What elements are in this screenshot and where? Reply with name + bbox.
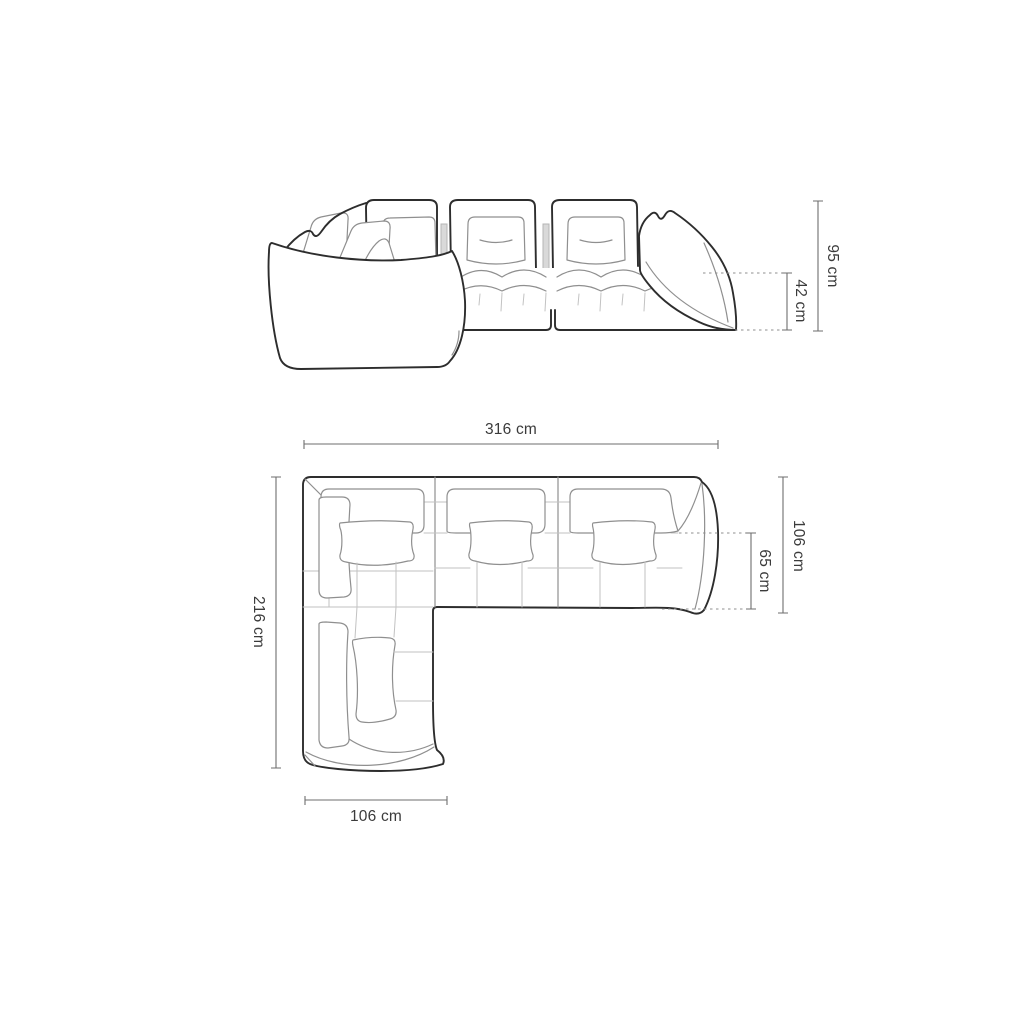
dim-label-chaise-width: 106 cm [350,808,402,826]
front-view [269,200,737,369]
dim-label-body-depth: 106 cm [789,520,807,572]
dim-label-overall-height: 95 cm [823,244,841,287]
chaise-width-dim-line [305,796,447,805]
sofa-dimension-diagram: 95 cm 42 cm 316 cm 216 cm 106 cm 65 cm 1… [0,0,1024,1024]
front-pillow-2 [467,217,525,264]
dim-label-seat-height: 42 cm [791,279,809,322]
plan-chaise-backrest [319,622,349,748]
overall-depth-dim-line [271,477,281,768]
plan-pillow-2 [469,521,533,565]
plan-pillow-corner [340,521,415,566]
plan-pillow-3 [592,521,656,565]
front-pillow-3 [567,217,625,264]
sofa-line-art [0,0,1024,1024]
plan-chaise-pillow [353,637,397,722]
overall-height-dim-line [813,201,823,331]
backrest-gap-2 [543,224,549,271]
dim-label-overall-width: 316 cm [485,421,537,439]
top-view [303,477,718,771]
dim-label-overall-depth: 216 cm [249,596,267,648]
overall-width-dim-line [304,440,718,449]
body-depth-dim-line [778,477,788,613]
dim-label-seat-depth: 65 cm [755,549,773,592]
corner-front-panel [269,243,466,369]
